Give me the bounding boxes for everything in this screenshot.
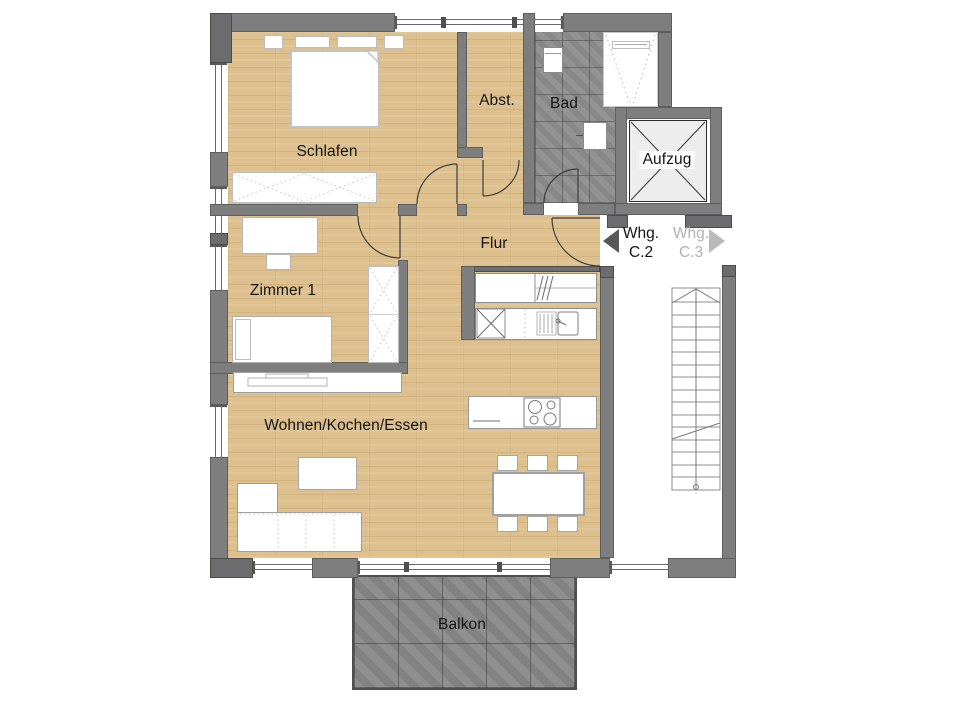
wall-left-2: [210, 290, 228, 405]
desk: [242, 217, 318, 254]
wall-apartment-right: [600, 266, 614, 558]
double-bed: [290, 50, 380, 128]
label-whg-c3-line1: Whg.: [673, 225, 709, 242]
label-whg-c3-line2: C.3: [679, 244, 703, 261]
label-whg-c2: Whg. C.2: [623, 224, 659, 262]
dining-chair-b2: [527, 516, 548, 532]
washbasin-ledge: [545, 50, 561, 54]
wall-schlafen-bottom-a: [210, 204, 358, 216]
label-whg-c2-line2: C.2: [629, 244, 653, 261]
label-balkon: Balkon: [438, 616, 486, 634]
elevator-shaft-top: [615, 107, 722, 119]
wall-kitchen-thin: [461, 266, 600, 272]
dining-chair-b1: [497, 516, 518, 532]
label-aufzug: Aufzug: [640, 151, 695, 169]
sofa-bottom-arm: [237, 512, 362, 552]
wall-left-1: [210, 152, 228, 187]
wall-zimmer1-right: [398, 260, 408, 368]
label-wohnen: Wohnen/Kochen/Essen: [264, 417, 428, 435]
wall-kitchen-stub: [461, 266, 475, 340]
wall-left-stub: [210, 233, 228, 245]
dining-chair-t3: [557, 455, 578, 471]
wall-schlafen-abst: [457, 32, 467, 152]
coffee-table: [298, 457, 357, 490]
window-wohnen: [210, 405, 227, 461]
window-bottom-stair: [610, 561, 672, 574]
wall-top-right: [563, 13, 672, 32]
wall-bad-bottom-a: [523, 203, 544, 215]
pillow-left: [295, 36, 330, 48]
kitchen-upper-counter: [475, 273, 597, 303]
toilet: [583, 122, 607, 150]
corner-bottom-left: [210, 558, 253, 578]
window-bottom-left: [253, 561, 316, 574]
kitchen-lower-counter: [475, 308, 597, 340]
wall-bottom-2: [550, 558, 610, 578]
sideboard: [233, 372, 402, 393]
pillow-right: [337, 36, 377, 48]
label-bad: Bad: [550, 95, 578, 113]
balcony-window-connector1: [404, 562, 409, 572]
desk-chair: [266, 254, 291, 270]
wall-bad-bottom-b: [578, 203, 615, 215]
wall-bottom-1: [312, 558, 358, 578]
wardrobe-zimmer1: [368, 266, 399, 363]
window-schlafen: [210, 63, 227, 156]
wall-abst-bad: [523, 13, 535, 203]
pillar-landing-right: [722, 265, 736, 277]
floor-plan: Schlafen Abst. Bad Aufzug Flur Zimmer 1 …: [0, 0, 963, 722]
window-top-connector2: [512, 17, 517, 28]
label-whg-c3: Whg. C.3: [673, 224, 709, 262]
label-schlafen: Schlafen: [296, 143, 357, 161]
kitchen-island: [468, 396, 597, 429]
nightstand-right: [384, 35, 404, 49]
arrow-whg-c2: [603, 229, 619, 253]
arrow-whg-c3: [709, 229, 725, 253]
wall-shower-right: [658, 32, 672, 107]
toilet-tick: [576, 135, 583, 136]
window-top-connector1: [441, 17, 446, 28]
window-zimmer1-b: [210, 245, 227, 294]
balcony-window-connector2: [497, 562, 502, 572]
balcony-door-window: [358, 561, 554, 574]
wall-schlafen-bottom-b: [398, 204, 417, 216]
dining-chair-t2: [527, 455, 548, 471]
elevator-shaft-right: [710, 107, 722, 215]
wall-abst-bottom: [457, 147, 483, 158]
label-flur: Flur: [480, 235, 507, 253]
corner-top-left: [210, 13, 232, 63]
nightstand-left: [264, 35, 283, 49]
island-fineprint-mark: [473, 420, 500, 422]
wall-stair-right: [722, 265, 736, 570]
single-bed-pillow: [235, 319, 251, 360]
dining-chair-b3: [557, 516, 578, 532]
elevator-shaft-left: [615, 107, 627, 215]
window-top: [395, 16, 563, 29]
wall-top-left: [210, 13, 395, 32]
label-whg-c2-line1: Whg.: [623, 225, 659, 242]
label-abst: Abst.: [479, 92, 515, 110]
pillar-landing-left: [600, 266, 614, 278]
elevator-shaft-bottom: [615, 203, 722, 215]
dining-table: [492, 472, 585, 516]
dining-chair-t1: [497, 455, 518, 471]
wardrobe-schlafen: [232, 172, 377, 203]
wall-bottom-3: [668, 558, 736, 578]
shower-shelf-line: [615, 44, 647, 47]
floor-stairwell: [600, 215, 740, 570]
wall-schlafen-bottom-cap: [457, 204, 467, 216]
label-zimmer1: Zimmer 1: [250, 282, 316, 300]
